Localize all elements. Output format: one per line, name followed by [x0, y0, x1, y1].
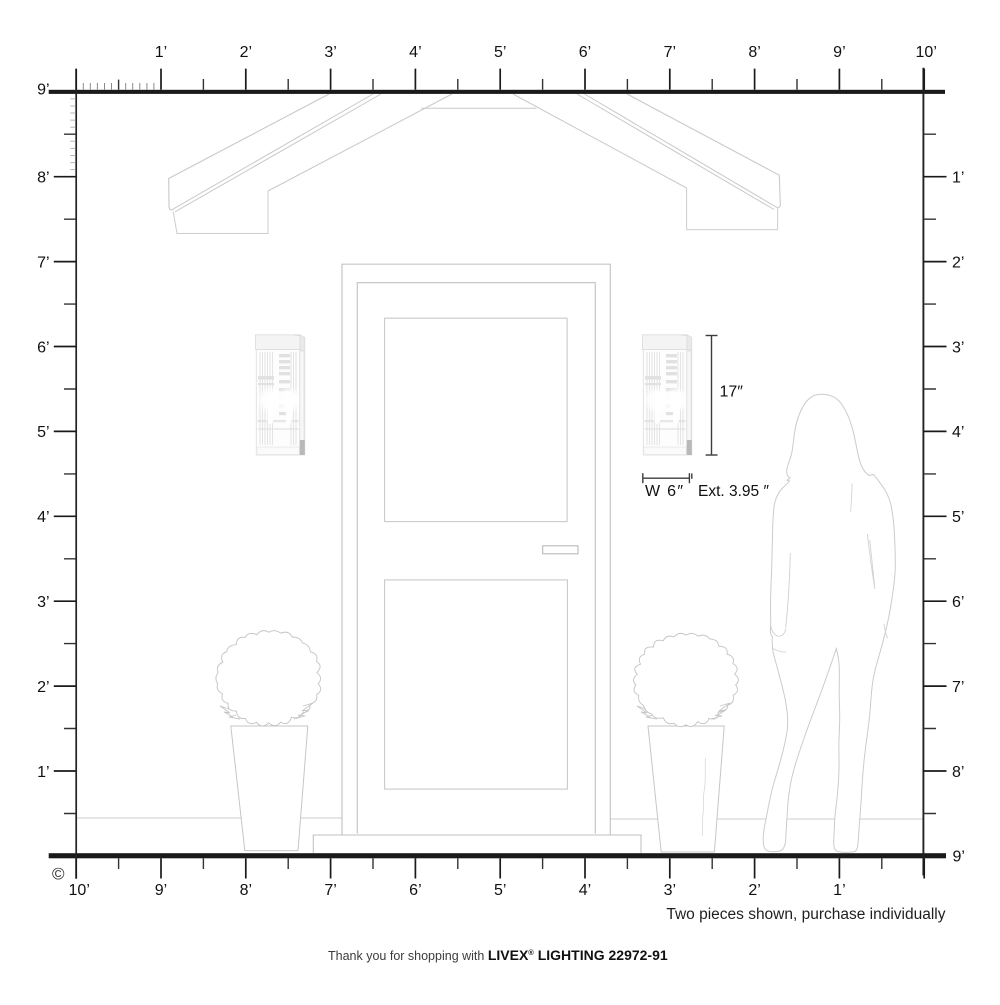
svg-text:8’: 8’ [952, 764, 964, 781]
svg-text:3’: 3’ [952, 339, 964, 356]
svg-text:Ext. 3.95 ″: Ext. 3.95 ″ [698, 483, 769, 500]
svg-text:W 6″: W 6″ [645, 483, 684, 500]
svg-text:2’: 2’ [952, 254, 964, 271]
svg-text:4’: 4’ [579, 882, 591, 899]
svg-text:8’: 8’ [748, 44, 760, 61]
svg-text:4’: 4’ [409, 44, 421, 61]
svg-text:1’: 1’ [155, 44, 167, 61]
svg-text:5’: 5’ [494, 44, 506, 61]
svg-text:5’: 5’ [37, 424, 49, 441]
svg-text:6’: 6’ [37, 339, 49, 356]
svg-text:7’: 7’ [952, 679, 964, 696]
svg-text:3’: 3’ [664, 882, 676, 899]
svg-text:5’: 5’ [952, 509, 964, 526]
svg-text:9’: 9’ [953, 849, 965, 866]
svg-text:17″: 17″ [720, 384, 744, 401]
svg-text:7’: 7’ [664, 44, 676, 61]
svg-text:10’: 10’ [69, 882, 90, 899]
svg-text:9’: 9’ [37, 82, 49, 99]
svg-text:1’: 1’ [952, 170, 964, 187]
svg-text:3’: 3’ [324, 44, 336, 61]
svg-text:6’: 6’ [579, 44, 591, 61]
svg-text:5’: 5’ [494, 882, 506, 899]
svg-text:7’: 7’ [324, 882, 336, 899]
svg-text:8’: 8’ [37, 170, 49, 187]
svg-text:2’: 2’ [240, 44, 252, 61]
svg-text:4’: 4’ [952, 424, 964, 441]
svg-text:7’: 7’ [37, 254, 49, 271]
svg-text:Thank you for shopping with LI: Thank you for shopping with LIVEX® LIGHT… [328, 947, 668, 963]
svg-text:©: © [52, 865, 65, 884]
svg-text:6’: 6’ [952, 594, 964, 611]
svg-text:3’: 3’ [37, 594, 49, 611]
svg-text:8’: 8’ [240, 882, 252, 899]
svg-text:4’: 4’ [37, 509, 49, 526]
svg-text:1’: 1’ [37, 764, 49, 781]
svg-text:9’: 9’ [155, 882, 167, 899]
svg-text:10’: 10’ [916, 44, 937, 61]
svg-text:6’: 6’ [409, 882, 421, 899]
svg-text:2’: 2’ [37, 679, 49, 696]
svg-text:1’: 1’ [833, 882, 845, 899]
svg-text:2’: 2’ [748, 882, 760, 899]
svg-text:Two pieces shown, purchase ind: Two pieces shown, purchase individually [666, 906, 945, 923]
svg-text:9’: 9’ [833, 44, 845, 61]
